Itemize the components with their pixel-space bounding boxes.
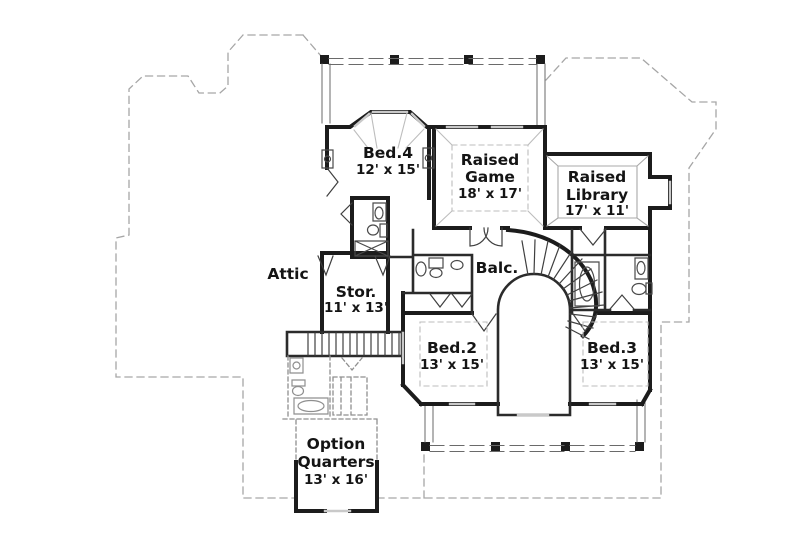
sink-bed2-right (451, 261, 463, 270)
optional-fixture-boxes (290, 358, 328, 414)
raised-game-label-2: Game (465, 168, 515, 186)
roof-outline-right (377, 58, 716, 498)
sink-bed3 (637, 262, 645, 275)
floor-plan-canvas: Bed.4 12' x 15' Raised Game 18' x 17' Ra… (0, 0, 800, 535)
straight-stair-treads (308, 333, 399, 355)
toilet-bed3 (632, 284, 646, 295)
raised-library-dims: 17' x 11' (565, 203, 629, 219)
bed3-dims: 13' x 15' (580, 357, 644, 373)
optional-sink (293, 362, 300, 369)
raised-library-label-2: Library (566, 186, 628, 204)
option-quarters-label-1: Option (307, 435, 366, 453)
raised-game-dims: 18' x 17' (458, 186, 522, 202)
bed4-dims: 12' x 15' (356, 162, 420, 178)
sink-bed2-left (416, 262, 426, 276)
bed2-dims: 13' x 15' (420, 357, 484, 373)
sink-bed4 (375, 207, 383, 219)
bed3-label: Bed.3 (587, 339, 637, 357)
toilet-bed4 (368, 225, 379, 235)
bed2-label: Bed.2 (427, 339, 477, 357)
raised-game-label-1: Raised (461, 151, 520, 169)
option-quarters-label-2: Quarters (297, 453, 374, 471)
optional-toilet (293, 387, 304, 396)
optional-tub (298, 401, 324, 412)
storage-label: Stor. (336, 283, 377, 301)
bed4-label: Bed.4 (363, 144, 413, 162)
floor-plan: Bed.4 12' x 15' Raised Game 18' x 17' Ra… (0, 0, 800, 535)
option-quarters-dims: 13' x 16' (304, 472, 368, 488)
stairwell-curved-wall (508, 230, 596, 336)
raised-library-label-1: Raised (568, 168, 627, 186)
toilet-bed2 (430, 269, 442, 278)
balcony-label: Balc. (476, 259, 519, 277)
storage-dims: 11' x 13' (324, 300, 388, 316)
attic-label: Attic (267, 265, 308, 283)
